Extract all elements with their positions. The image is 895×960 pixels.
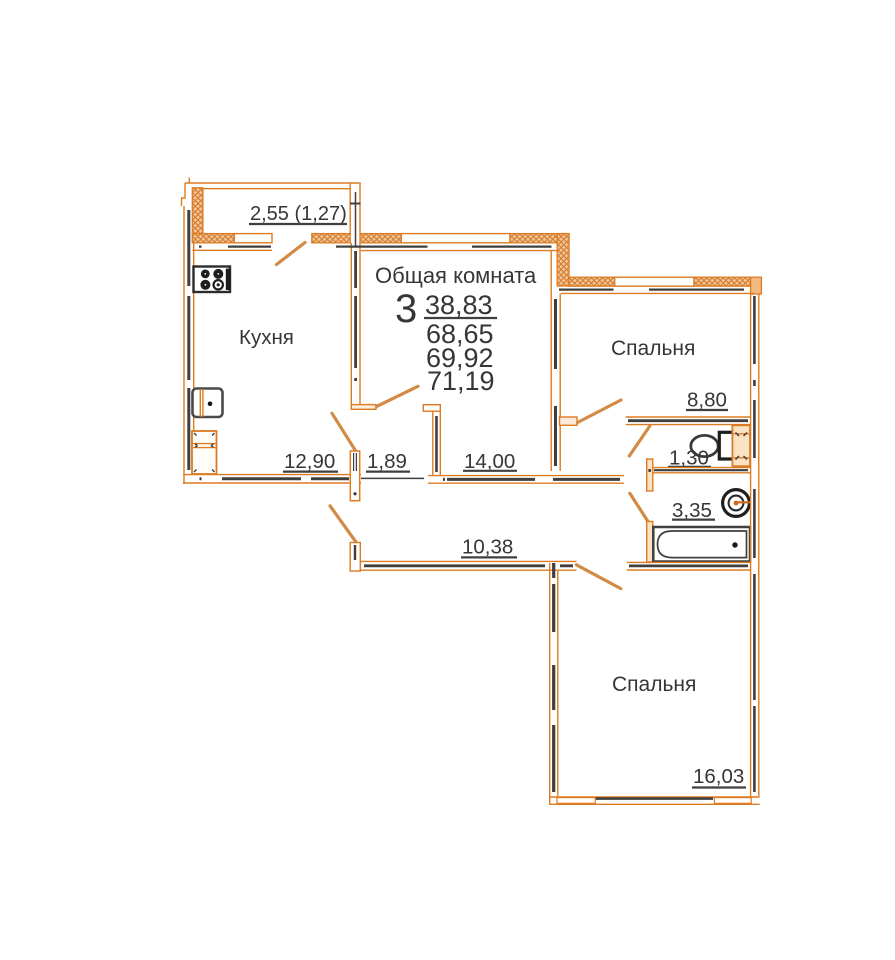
svg-text:2,55 (1,27): 2,55 (1,27) (250, 203, 347, 225)
svg-text:Спальня: Спальня (612, 673, 696, 696)
svg-text:38,83: 38,83 (425, 290, 493, 320)
svg-text:14,00: 14,00 (464, 450, 515, 473)
svg-text:Кухня: Кухня (239, 326, 294, 349)
svg-text:1,89: 1,89 (367, 450, 407, 473)
svg-text:Спальня: Спальня (611, 337, 695, 360)
svg-text:8,80: 8,80 (687, 389, 727, 412)
svg-text:10,38: 10,38 (462, 536, 513, 559)
svg-text:3: 3 (395, 287, 417, 331)
svg-text:71,19: 71,19 (427, 366, 495, 396)
svg-text:16,03: 16,03 (693, 765, 744, 788)
svg-text:12,90: 12,90 (284, 450, 335, 473)
svg-text:Общая комната: Общая комната (375, 263, 537, 288)
